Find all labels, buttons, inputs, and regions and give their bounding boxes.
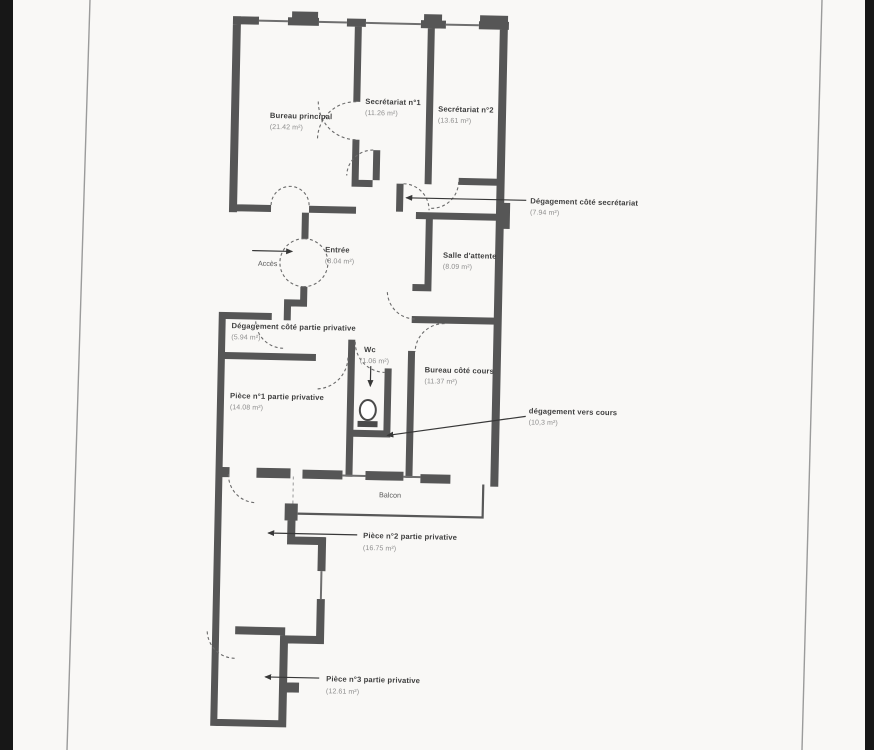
window-line (319, 22, 347, 23)
scanned-floor-plan-document: Bureau principal (21.42 m²) Secrétariat … (0, 0, 874, 750)
acces-arrow (252, 251, 292, 252)
room-area-secretariat-2: (13.61 m²) (438, 117, 471, 125)
room-label-bureau-cours: Bureau côté cours (425, 365, 494, 375)
plan-svg: Bureau principal (21.42 m²) Secrétariat … (0, 0, 874, 750)
scan-edge-right (865, 0, 874, 750)
room-area-degagement-secretariat: (7.94 m²) (530, 209, 559, 217)
annotation-balcon: Balcon (379, 490, 401, 499)
paper-background (0, 0, 874, 750)
toilet-icon (357, 400, 378, 427)
annotation-acces: Accès (258, 259, 278, 268)
room-area-piece-3: (12.61 m²) (326, 688, 359, 696)
room-label-secretariat-2: Secrétariat n°2 (438, 104, 494, 114)
room-area-piece-2: (16.75 m²) (363, 545, 396, 553)
room-area-bureau-principal: (21.42 m²) (270, 124, 303, 132)
room-label-wc: Wc (364, 345, 376, 354)
room-area-piece-1: (14.08 m²) (230, 404, 263, 412)
window-line (321, 571, 322, 599)
room-area-degagement-privative: (5.94 m²) (231, 334, 260, 342)
room-label-entree: Entrée (325, 245, 350, 255)
window-line (366, 23, 421, 24)
toilet-base (357, 421, 377, 427)
room-area-salle-attente: (8.09 m²) (443, 264, 472, 272)
scan-edge-left (0, 0, 13, 750)
window-line (446, 25, 479, 26)
room-label-salle-attente: Salle d'attente (443, 251, 497, 261)
room-label-secretariat-1: Secrétariat n°1 (365, 97, 421, 107)
room-area-bureau-cours: (11.37 m²) (424, 378, 457, 386)
room-label-bureau-principal: Bureau principal (270, 111, 333, 121)
toilet-bowl (360, 400, 376, 420)
room-area-wc: (1.06 m²) (360, 358, 389, 366)
room-area-degagement-vers-cours: (10,3 m²) (529, 419, 558, 427)
room-label-degagement-vers-cours: dégagement vers cours (529, 406, 618, 417)
room-area-secretariat-1: (11.26 m²) (365, 110, 398, 118)
window-line (259, 21, 288, 22)
room-area-entree: (8.04 m²) (325, 258, 354, 266)
